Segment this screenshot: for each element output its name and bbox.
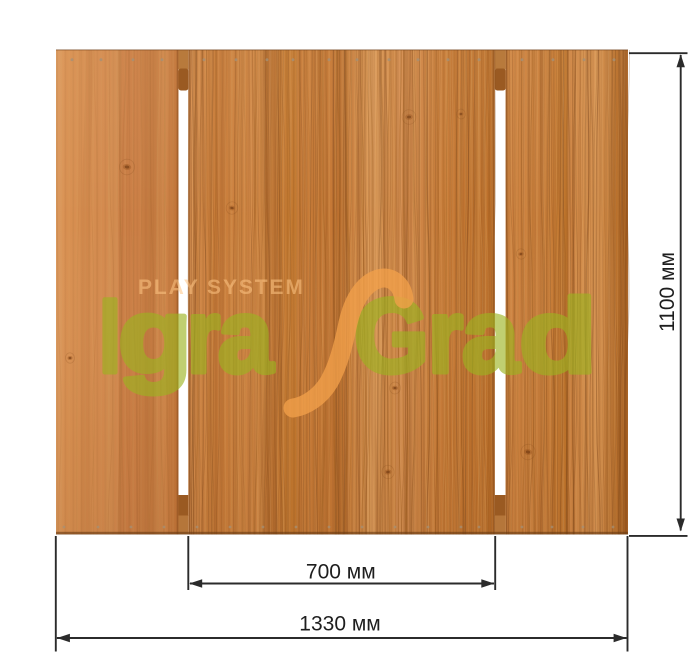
svg-text:d: d (519, 278, 597, 395)
svg-text:r: r (187, 278, 220, 395)
svg-text:a: a (462, 278, 521, 395)
svg-text:a: a (218, 278, 275, 395)
svg-text:700 мм: 700 мм (306, 561, 376, 584)
svg-text:r: r (428, 278, 463, 395)
svg-text:1100 мм: 1100 мм (656, 252, 679, 332)
svg-text:1330 мм: 1330 мм (299, 613, 380, 636)
svg-text:g: g (118, 278, 192, 395)
